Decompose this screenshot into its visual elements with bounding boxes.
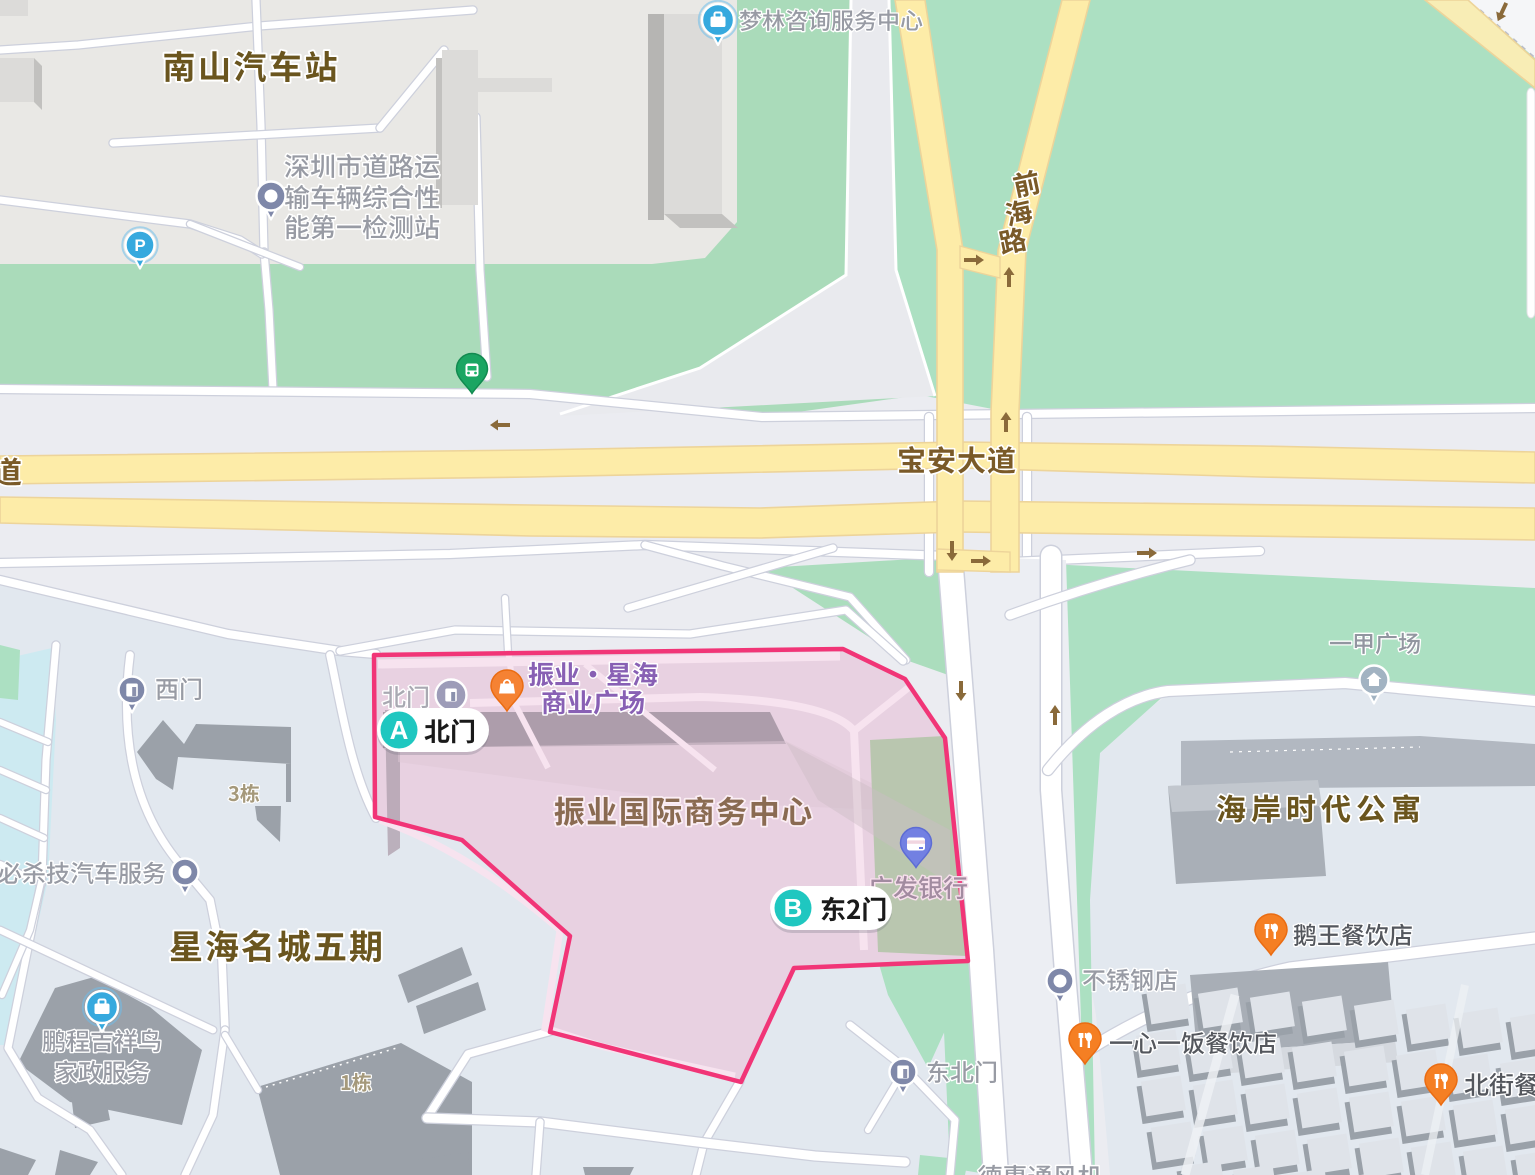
svg-text:P: P [134, 236, 145, 255]
svg-text:A: A [390, 715, 409, 745]
svg-text:B: B [784, 893, 803, 923]
